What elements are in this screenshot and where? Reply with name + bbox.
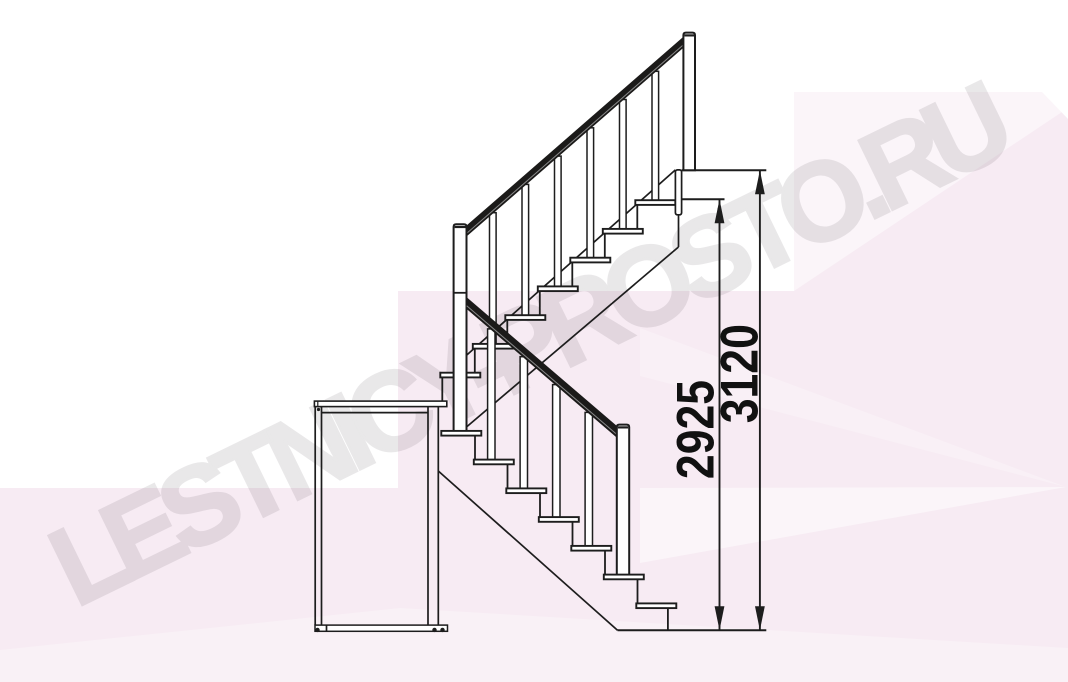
svg-text:3120: 3120 (711, 324, 769, 423)
